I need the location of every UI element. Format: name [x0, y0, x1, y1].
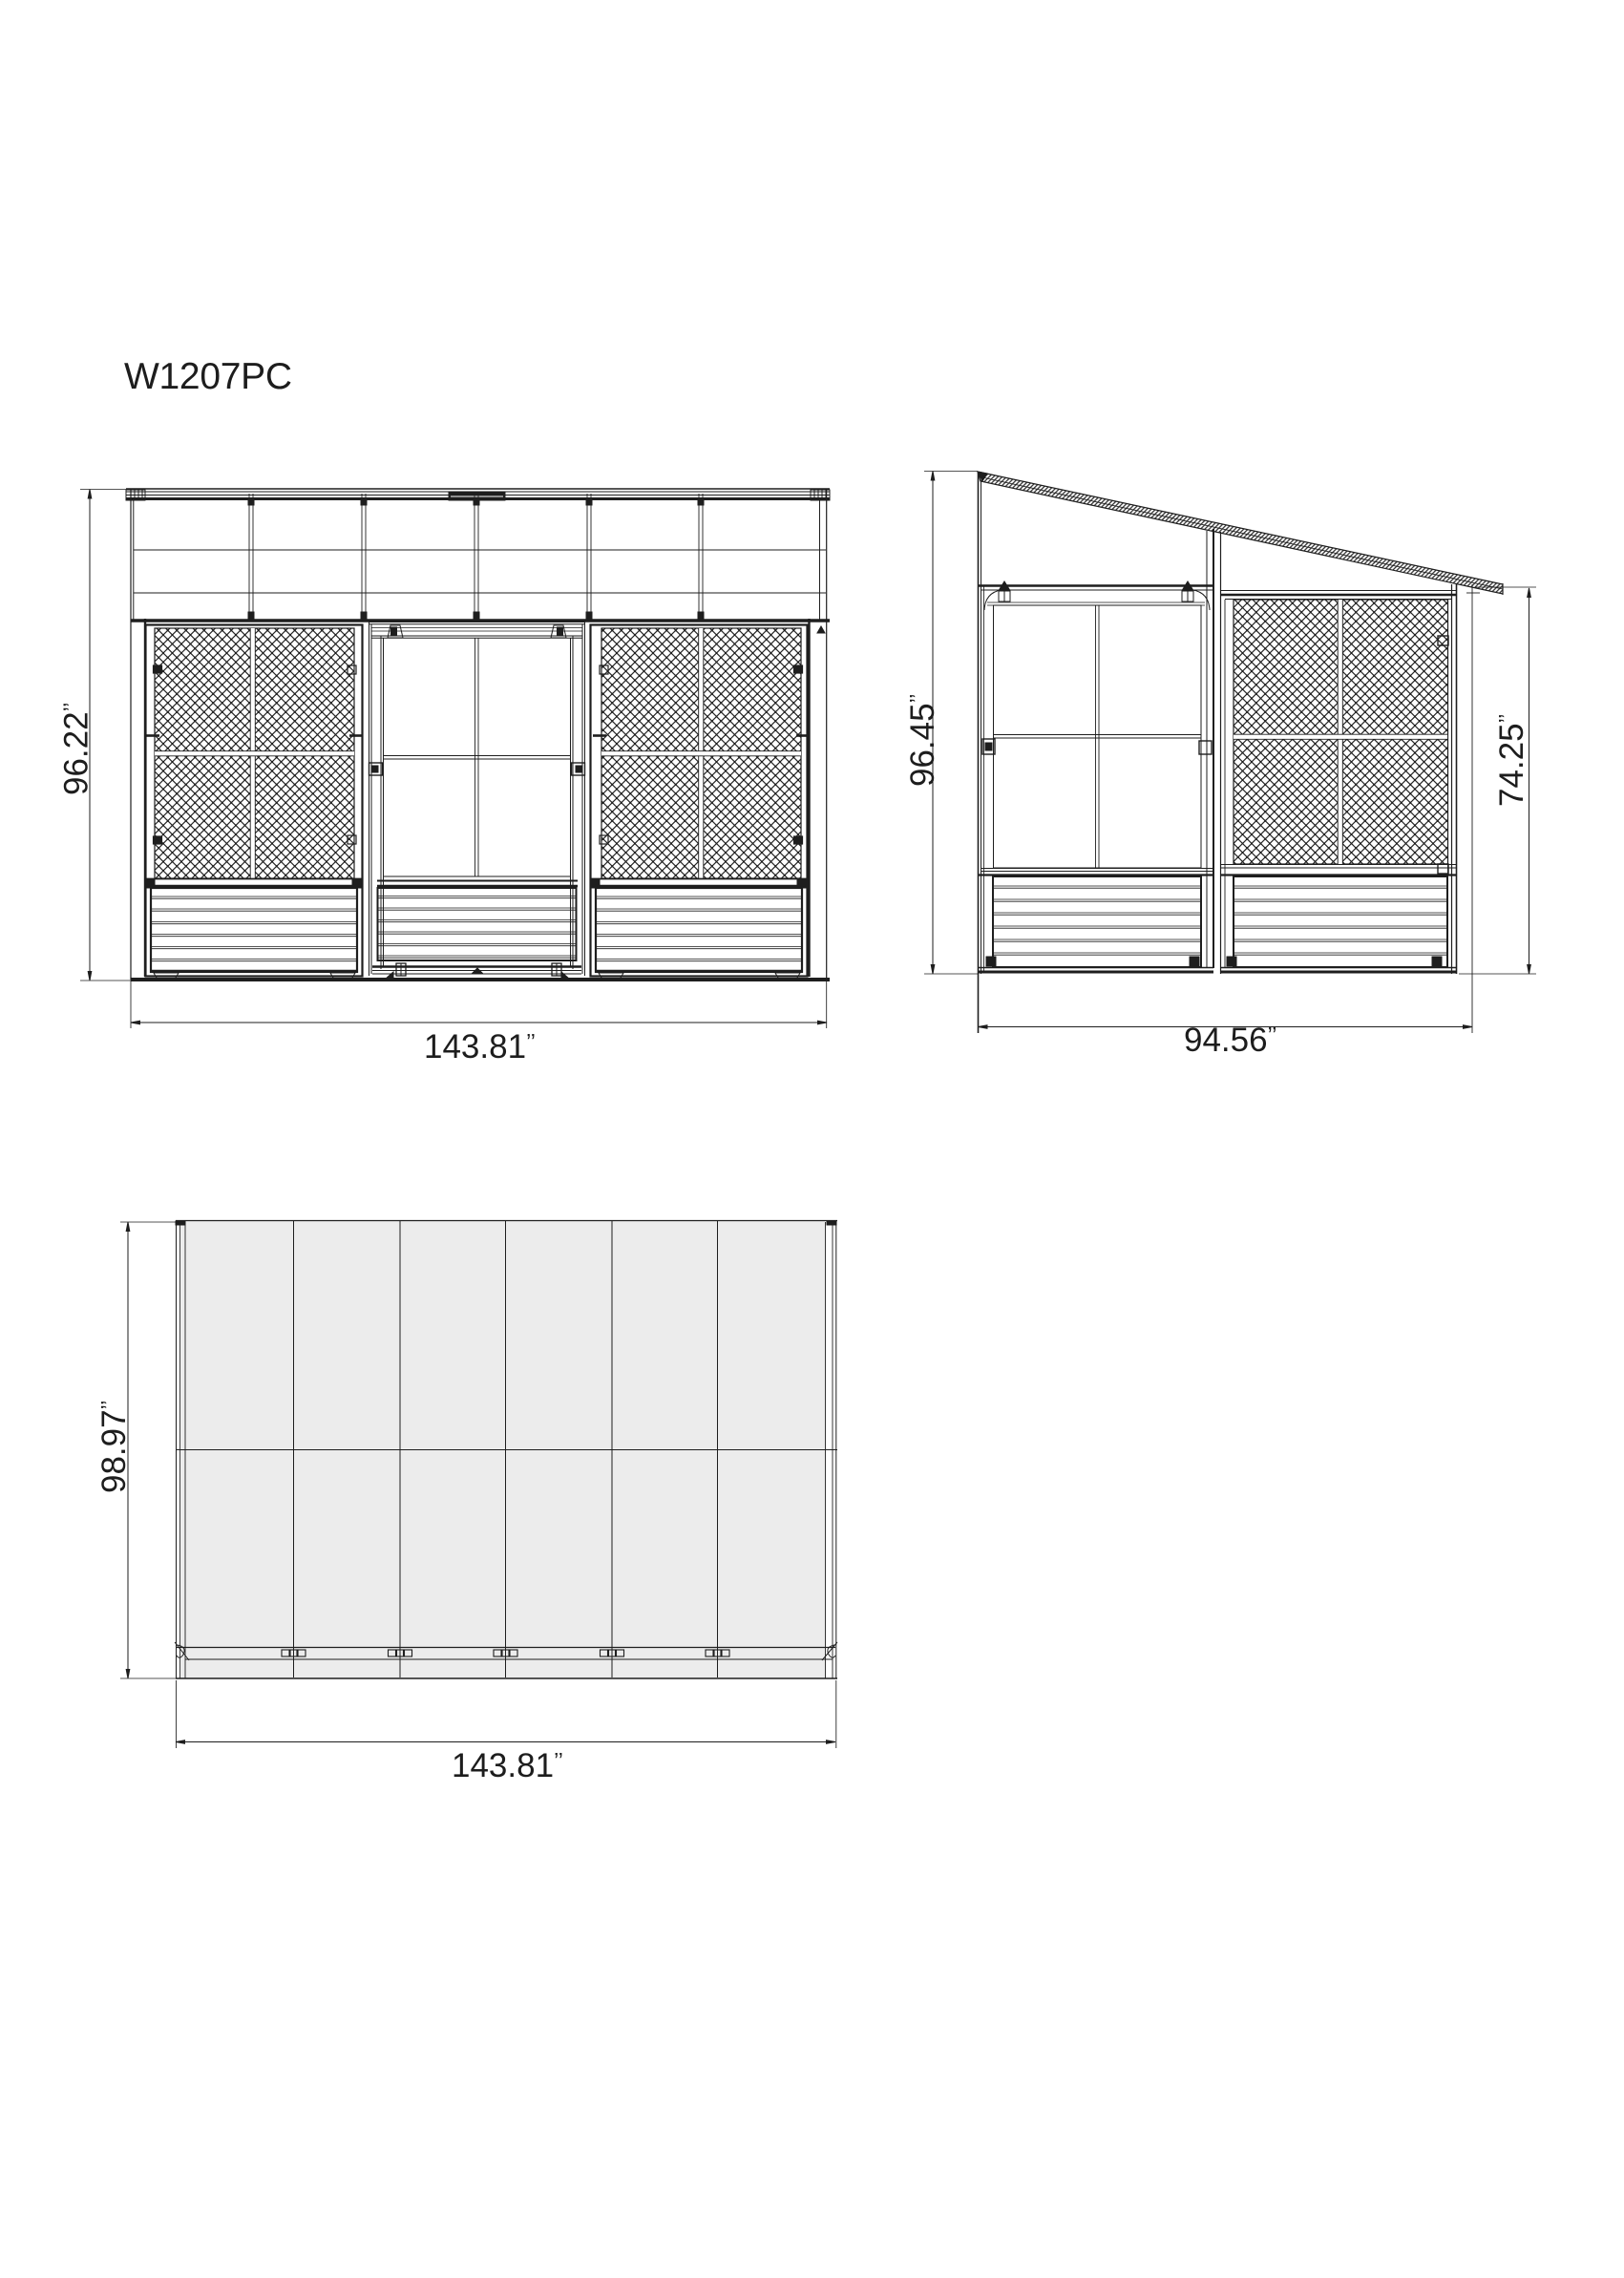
svg-text:96.22’’: 96.22’’	[58, 703, 95, 795]
svg-text:98.97’’: 98.97’’	[95, 1401, 133, 1493]
svg-text:94.56’’: 94.56’’	[1184, 1022, 1276, 1059]
svg-text:74.25’’: 74.25’’	[1493, 714, 1530, 807]
svg-text:143.81’’: 143.81’’	[452, 1747, 563, 1784]
svg-text:96.45’’: 96.45’’	[904, 694, 941, 787]
svg-text:W1207PC: W1207PC	[124, 356, 292, 397]
svg-text:143.81’’: 143.81’’	[424, 1028, 536, 1065]
